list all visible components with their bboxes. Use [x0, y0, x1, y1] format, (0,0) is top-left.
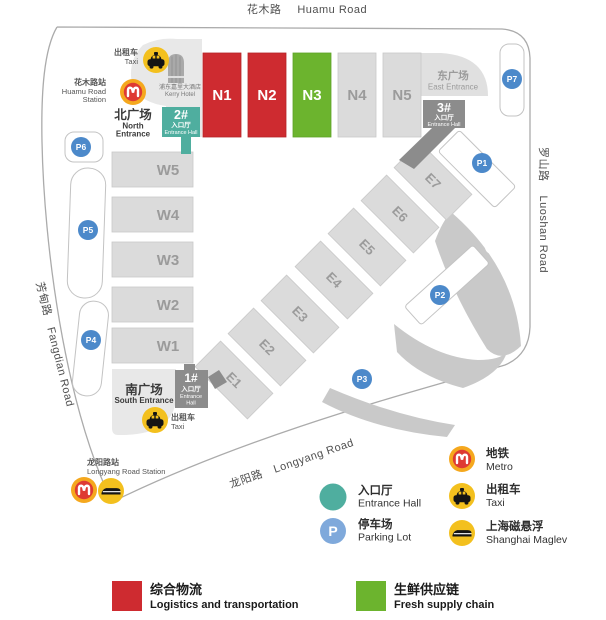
svg-text:P2: P2: [435, 290, 446, 300]
svg-text:P7: P7: [507, 74, 518, 84]
svg-text:入口厅: 入口厅: [180, 385, 201, 393]
svg-text:Fresh supply chain: Fresh supply chain: [394, 599, 495, 611]
taxi-label-south: 出租车 Taxi: [171, 412, 195, 431]
svg-text:上海磁悬浮: 上海磁悬浮: [486, 519, 544, 533]
metro-icon-huamu: [120, 79, 146, 105]
svg-text:入口厅: 入口厅: [433, 114, 454, 122]
map-canvas: 花木路Huamu Road 罗山路Luoshan Road 芳甸路Fangdia…: [0, 0, 606, 620]
hall-w2: W2: [112, 287, 193, 322]
parking-p7: P7: [502, 69, 522, 89]
svg-text:Longyang Road Station: Longyang Road Station: [87, 467, 165, 476]
svg-text:龙阳路站: 龙阳路站: [86, 457, 119, 467]
hall-n5: N5: [383, 53, 421, 137]
parking-p4: P4: [81, 330, 101, 350]
maglev-icon: [449, 520, 475, 546]
kerry-hotel-label: 浦东嘉里大酒店 Kerry Hotel: [159, 83, 201, 98]
svg-text:P5: P5: [83, 225, 94, 235]
svg-text:Taxi: Taxi: [171, 422, 185, 431]
hall-w1: W1: [112, 328, 193, 363]
svg-text:Taxi: Taxi: [125, 57, 139, 66]
road-label-huamu: 花木路Huamu Road: [247, 3, 367, 16]
svg-text:南广场: 南广场: [125, 382, 163, 397]
legend-parking-lot: P 停车场 Parking Lot: [320, 517, 411, 544]
fresh-swatch: [356, 581, 386, 611]
svg-text:W2: W2: [157, 297, 180, 314]
parking-p3: P3: [352, 369, 372, 389]
gate-2-entrance-hall: 2# 入口厅 Entrance Hall: [162, 107, 200, 154]
svg-text:W1: W1: [157, 338, 180, 355]
maglev-icon-longyang: [98, 478, 124, 504]
svg-text:2#: 2#: [174, 108, 188, 122]
svg-text:停车场: 停车场: [358, 517, 393, 531]
svg-text:P3: P3: [357, 374, 368, 384]
svg-text:地铁: 地铁: [486, 446, 509, 460]
svg-text:东广场: 东广场: [437, 69, 469, 82]
svg-text:N1: N1: [212, 87, 231, 104]
svg-text:P1: P1: [477, 158, 488, 168]
gate-1-entrance-hall: 1# 入口厅 Entrance Hall: [175, 364, 227, 408]
svg-text:北广场: 北广场: [114, 107, 152, 122]
legend-taxi: 出租车 Taxi: [449, 482, 521, 509]
svg-text:Parking Lot: Parking Lot: [358, 532, 411, 544]
hall-n1: N1: [203, 53, 241, 137]
logistics-swatch: [112, 581, 142, 611]
svg-text:入口厅: 入口厅: [170, 121, 191, 129]
svg-text:N4: N4: [347, 87, 367, 104]
svg-text:W4: W4: [157, 207, 180, 224]
hall-n3: N3: [293, 53, 331, 137]
huamu-station-label: 花木路站 Huamu Road Station: [62, 77, 106, 104]
parking-p2: P2: [430, 285, 450, 305]
svg-text:Entrance Hall: Entrance Hall: [164, 130, 197, 136]
svg-text:P4: P4: [86, 335, 97, 345]
svg-text:South Entrance: South Entrance: [114, 396, 174, 405]
svg-text:3#: 3#: [437, 101, 451, 115]
parking-p5: P5: [78, 220, 98, 240]
expo-site-map: 花木路Huamu Road 罗山路Luoshan Road 芳甸路Fangdia…: [0, 0, 606, 620]
metro-icon: [449, 446, 475, 472]
svg-text:浦东嘉里大酒店: 浦东嘉里大酒店: [159, 83, 201, 91]
svg-text:Station: Station: [83, 95, 106, 104]
road-label-luoshan: 罗山路Luoshan Road: [537, 147, 550, 273]
svg-text:P: P: [328, 523, 337, 539]
hall-w3: W3: [112, 242, 193, 277]
svg-text:花木路站: 花木路站: [74, 77, 106, 87]
svg-text:Shanghai Maglev: Shanghai Maglev: [486, 534, 568, 546]
hall-n2: N2: [248, 53, 286, 137]
metro-icon-longyang: [71, 477, 97, 503]
road-label-longyang: 龙阳路Longyang Road: [228, 436, 356, 491]
entrance-hall-swatch: [320, 484, 347, 511]
taxi-icon: [449, 483, 475, 509]
hall-n4: N4: [338, 53, 376, 137]
taxi-icon-north: [143, 47, 169, 73]
svg-text:N5: N5: [392, 87, 411, 104]
svg-text:W5: W5: [157, 162, 180, 179]
taxi-icon-south: [142, 407, 168, 433]
legend-fresh: 生鲜供应链 Fresh supply chain: [356, 581, 495, 611]
svg-text:W3: W3: [157, 252, 180, 269]
svg-text:Entrance Hall: Entrance Hall: [358, 498, 421, 510]
svg-text:Metro: Metro: [486, 461, 513, 473]
kerry-hotel-icon: [168, 54, 184, 83]
svg-text:Entrance Hall: Entrance Hall: [427, 122, 460, 128]
svg-text:Hall: Hall: [186, 401, 195, 407]
longyang-station-label: 龙阳路站 Longyang Road Station: [86, 457, 165, 476]
svg-text:N3: N3: [302, 87, 321, 104]
parking-p1: P1: [472, 153, 492, 173]
svg-text:Taxi: Taxi: [486, 497, 505, 509]
svg-text:出租车: 出租车: [171, 412, 195, 422]
svg-text:入口厅: 入口厅: [358, 484, 393, 497]
svg-text:Entrance: Entrance: [180, 394, 202, 400]
svg-text:P6: P6: [76, 142, 87, 152]
legend-metro: 地铁 Metro: [449, 446, 513, 473]
svg-text:N2: N2: [257, 87, 276, 104]
svg-text:综合物流: 综合物流: [150, 582, 202, 597]
svg-text:Kerry Hotel: Kerry Hotel: [165, 92, 195, 98]
legend-logistics: 综合物流 Logistics and transportation: [112, 581, 299, 611]
svg-text:East Entrance: East Entrance: [428, 83, 479, 92]
svg-text:出租车: 出租车: [486, 482, 521, 496]
svg-text:Entrance: Entrance: [116, 130, 151, 139]
svg-text:生鲜供应链: 生鲜供应链: [394, 582, 460, 597]
legend-entrance-hall: 入口厅 Entrance Hall: [320, 484, 422, 511]
svg-text:1#: 1#: [184, 371, 198, 385]
hall-w4: W4: [112, 197, 193, 232]
taxi-label-north: 出租车 Taxi: [114, 47, 138, 66]
svg-text:Logistics and transportation: Logistics and transportation: [150, 599, 299, 611]
north-entrance-label: 北广场 North Entrance: [114, 107, 152, 139]
legend-maglev: 上海磁悬浮 Shanghai Maglev: [449, 519, 568, 546]
parking-p6: P6: [71, 137, 91, 157]
hall-w5: W5: [112, 152, 193, 187]
svg-text:出租车: 出租车: [114, 47, 138, 57]
